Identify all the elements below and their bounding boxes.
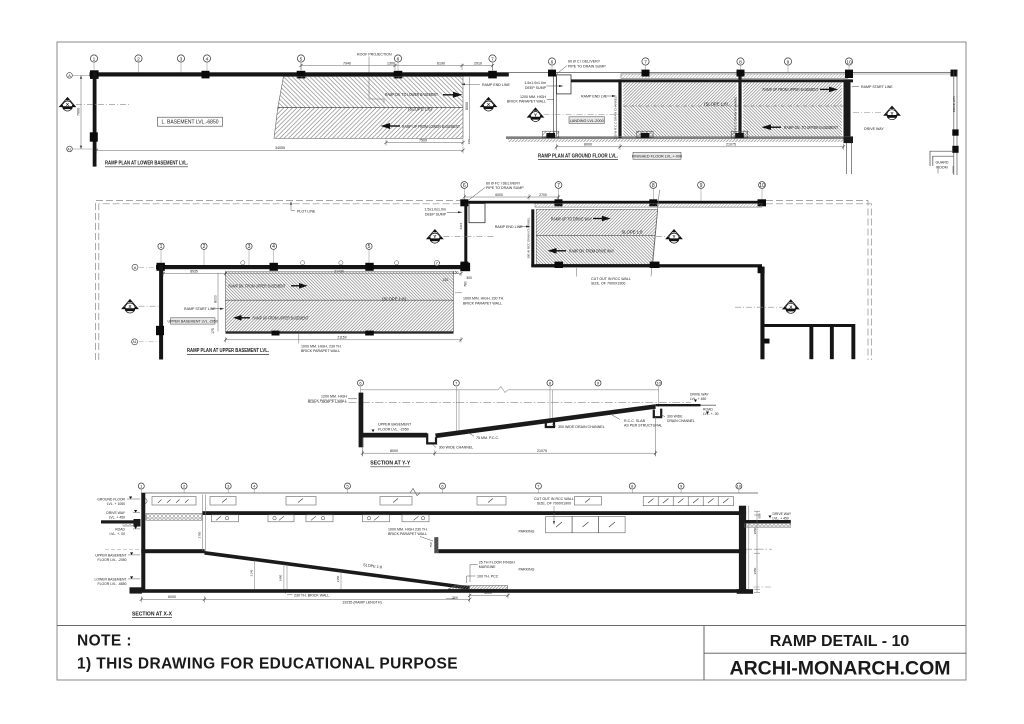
svg-text:5000: 5000 bbox=[484, 591, 492, 595]
svg-text:300 W RCC DRAIN CHANNEL: 300 W RCC DRAIN CHANNEL bbox=[527, 217, 531, 259]
svg-text:SIZE, OF 7000X1900: SIZE, OF 7000X1900 bbox=[537, 502, 571, 506]
svg-text:ROOM: ROOM bbox=[936, 166, 947, 170]
svg-text:2145: 2145 bbox=[250, 569, 254, 576]
svg-text:230 TH. BRICK WALL: 230 TH. BRICK WALL bbox=[294, 593, 329, 597]
svg-text:8000: 8000 bbox=[584, 143, 592, 147]
svg-text:LVL. + 450: LVL. + 450 bbox=[773, 517, 789, 521]
svg-text:300 WIDE CHANNEL: 300 WIDE CHANNEL bbox=[439, 446, 474, 450]
svg-text:RAMP UP FROM LOWER BASEMENT: RAMP UP FROM LOWER BASEMENT bbox=[402, 124, 460, 129]
svg-text:1.5x1.0x1.0m: 1.5x1.0x1.0m bbox=[424, 208, 446, 212]
svg-text:ARCHI-MONARCH.COM: ARCHI-MONARCH.COM bbox=[730, 657, 951, 679]
svg-text:DRIVE WAY: DRIVE WAY bbox=[864, 127, 884, 131]
svg-text:600: 600 bbox=[758, 513, 762, 518]
svg-text:RAMP PLAN AT UPPER BASEMENT LV: RAMP PLAN AT UPPER BASEMENT LVL. bbox=[187, 348, 269, 354]
svg-text:3050: 3050 bbox=[753, 527, 757, 534]
svg-text:300: 300 bbox=[466, 276, 472, 280]
svg-text:RAMP DETAIL - 10: RAMP DETAIL - 10 bbox=[770, 633, 910, 650]
svg-text:1200 MM. HIGH: 1200 MM. HIGH bbox=[520, 95, 546, 99]
svg-text:34055: 34055 bbox=[275, 146, 285, 150]
svg-text:GROUND FLOOR: GROUND FLOOR bbox=[97, 498, 125, 502]
svg-text:3400: 3400 bbox=[279, 574, 283, 581]
svg-text:PIPE TO DRAIN SUMP: PIPE TO DRAIN SUMP bbox=[568, 64, 606, 68]
svg-text:1) THIS DRAWING FOR EDUCATIONA: 1) THIS DRAWING FOR EDUCATIONAL PURPOSE bbox=[77, 656, 458, 673]
svg-text:DRIVE WAY: DRIVE WAY bbox=[952, 96, 956, 113]
svg-text:A: A bbox=[134, 265, 137, 270]
svg-text:PLOT LINE: PLOT LINE bbox=[297, 210, 316, 214]
svg-text:BRICK PARAPET WALL: BRICK PARAPET WALL bbox=[388, 532, 427, 536]
svg-text:10: 10 bbox=[656, 381, 661, 386]
svg-text:BRICK PARAPET WALL: BRICK PARAPET WALL bbox=[507, 100, 546, 104]
svg-text:FLOOR LVL. -2050: FLOOR LVL. -2050 bbox=[378, 427, 409, 431]
svg-text:8000: 8000 bbox=[465, 102, 469, 110]
svg-text:3: 3 bbox=[248, 244, 251, 250]
svg-text:21075: 21075 bbox=[537, 449, 547, 453]
svg-text:1: 1 bbox=[93, 56, 96, 62]
svg-text:10: 10 bbox=[846, 60, 852, 66]
svg-text:6000: 6000 bbox=[495, 193, 503, 197]
svg-text:2: 2 bbox=[203, 244, 206, 250]
svg-text:6190: 6190 bbox=[437, 61, 445, 65]
svg-text:RAMP START LINE: RAMP START LINE bbox=[861, 85, 893, 89]
svg-text:(SLOPE 1:8): (SLOPE 1:8) bbox=[382, 296, 406, 301]
svg-text:2700: 2700 bbox=[539, 193, 547, 197]
svg-text:10: 10 bbox=[759, 183, 765, 189]
svg-text:7: 7 bbox=[557, 183, 560, 189]
svg-text:3650: 3650 bbox=[753, 567, 757, 574]
svg-text:LVL. +- 00: LVL. +- 00 bbox=[110, 532, 126, 536]
svg-text:RAMP PLAN AT GROUND FLOOR LVL.: RAMP PLAN AT GROUND FLOOR LVL. bbox=[538, 153, 618, 159]
svg-text:6: 6 bbox=[397, 57, 400, 63]
svg-text:175: 175 bbox=[211, 328, 215, 334]
svg-text:300 W R.C.C DRAIN CHANNEL: 300 W R.C.C DRAIN CHANNEL bbox=[614, 96, 618, 139]
svg-text:6215: 6215 bbox=[459, 222, 463, 229]
svg-text:1000 MM. HIGH 230 TH.: 1000 MM. HIGH 230 TH. bbox=[388, 527, 428, 531]
svg-text:DRAIN CHANNEL: DRAIN CHANNEL bbox=[667, 419, 695, 423]
svg-text:8: 8 bbox=[739, 60, 742, 66]
svg-text:SIZE, OF 7000X1900: SIZE, OF 7000X1900 bbox=[591, 282, 625, 286]
svg-text:GUARD: GUARD bbox=[936, 161, 949, 165]
svg-text:UPPER BASEMENT: UPPER BASEMENT bbox=[378, 423, 412, 427]
svg-text:7: 7 bbox=[491, 57, 494, 63]
svg-text:BRICK PARAPET WALL: BRICK PARAPET WALL bbox=[308, 399, 347, 403]
svg-text:100 TH. PCC: 100 TH. PCC bbox=[477, 574, 499, 578]
svg-text:210: 210 bbox=[443, 278, 449, 282]
svg-text:9: 9 bbox=[700, 183, 703, 189]
svg-text:750: 750 bbox=[429, 542, 433, 547]
svg-text:1200 MM. HIGH: 1200 MM. HIGH bbox=[321, 394, 347, 398]
svg-text:2: 2 bbox=[137, 57, 140, 63]
svg-text:CUT OUT IN RCC WALL: CUT OUT IN RCC WALL bbox=[591, 277, 631, 281]
svg-text:ROAD: ROAD bbox=[703, 408, 713, 412]
svg-text:RAMP UP FROM UPPER BASEMENT: RAMP UP FROM UPPER BASEMENT bbox=[763, 87, 819, 92]
svg-text:ROAD: ROAD bbox=[115, 527, 125, 531]
svg-text:NOTE :: NOTE : bbox=[77, 633, 132, 650]
svg-text:UPPER BASEMENT LVL.-2050: UPPER BASEMENT LVL.-2050 bbox=[167, 320, 217, 324]
svg-text:ROOF PROJECTION: ROOF PROJECTION bbox=[357, 53, 392, 57]
svg-text:(SLOPE 1:8): (SLOPE 1:8) bbox=[408, 106, 432, 111]
svg-text:8: 8 bbox=[652, 183, 655, 189]
svg-text:3: 3 bbox=[180, 57, 183, 63]
svg-text:SECTION AT Y-Y: SECTION AT Y-Y bbox=[370, 461, 410, 467]
svg-text:150: 150 bbox=[453, 271, 459, 275]
svg-text:2910: 2910 bbox=[474, 61, 482, 65]
svg-text:190: 190 bbox=[467, 139, 471, 144]
svg-text:LANDING LVL-2000: LANDING LVL-2000 bbox=[570, 119, 604, 123]
svg-text:A: A bbox=[68, 74, 71, 78]
svg-text:RAMP DN. TO UPPER BASEMENT: RAMP DN. TO UPPER BASEMENT bbox=[784, 125, 838, 130]
svg-text:1000 MM. HIGH, 230 TH.: 1000 MM. HIGH, 230 TH. bbox=[301, 344, 342, 348]
svg-text:BRICK PARAPET WALL: BRICK PARAPET WALL bbox=[463, 301, 502, 305]
svg-text:A1: A1 bbox=[67, 147, 71, 151]
svg-text:9: 9 bbox=[787, 60, 790, 66]
svg-text:A1: A1 bbox=[133, 340, 137, 344]
svg-text:FINISHED FLOOR LVL.+-000: FINISHED FLOOR LVL.+-000 bbox=[632, 154, 682, 158]
svg-text:DRIVE WAY: DRIVE WAY bbox=[773, 512, 792, 516]
svg-text:RAMP UP TO DRIVE WAY: RAMP UP TO DRIVE WAY bbox=[551, 216, 592, 221]
svg-text:DEEP SUMP: DEEP SUMP bbox=[425, 212, 447, 216]
svg-text:LVL. +- 00: LVL. +- 00 bbox=[703, 412, 719, 416]
svg-text:RAMP UP FROM UPPER BASEMENT: RAMP UP FROM UPPER BASEMENT bbox=[253, 315, 309, 320]
svg-text:PARKING: PARKING bbox=[519, 529, 535, 533]
svg-text:PIPE TO DRAIN SUMP: PIPE TO DRAIN SUMP bbox=[486, 186, 524, 190]
svg-text:300 WIDE DRAIN CHANNEL: 300 WIDE DRAIN CHANNEL bbox=[558, 425, 605, 429]
svg-text:FLOOR LVL. -2050: FLOOR LVL. -2050 bbox=[98, 558, 127, 562]
svg-text:4: 4 bbox=[272, 244, 275, 250]
svg-text:RAMP DN. TO LOWER BASEMENT: RAMP DN. TO LOWER BASEMENT bbox=[385, 92, 438, 97]
svg-text:8000: 8000 bbox=[390, 449, 398, 453]
svg-text:8935: 8935 bbox=[190, 269, 198, 273]
svg-text:2750: 2750 bbox=[198, 531, 202, 538]
svg-text:PARKING: PARKING bbox=[519, 567, 535, 571]
svg-text:4: 4 bbox=[206, 57, 209, 63]
svg-text:1: 1 bbox=[160, 244, 163, 250]
svg-text:RAMP PLAN AT LOWER BASEMENT LV: RAMP PLAN AT LOWER BASEMENT LVL. bbox=[105, 161, 188, 167]
svg-text:300 WIDE: 300 WIDE bbox=[667, 415, 683, 419]
svg-text:21075: 21075 bbox=[726, 143, 736, 147]
svg-text:LVL. + 450: LVL. + 450 bbox=[690, 397, 706, 401]
svg-text:60 Ø FC I DELIVERY: 60 Ø FC I DELIVERY bbox=[486, 181, 521, 185]
svg-text:LVL. + 1050: LVL. + 1050 bbox=[107, 502, 125, 506]
svg-text:25 TH FLOOR FINISH: 25 TH FLOOR FINISH bbox=[479, 560, 515, 564]
svg-text:7000: 7000 bbox=[76, 108, 80, 116]
svg-text:19235 (RAMP LENGTH): 19235 (RAMP LENGTH) bbox=[342, 601, 381, 605]
svg-text:UPPER BASEMENT: UPPER BASEMENT bbox=[95, 553, 126, 557]
svg-text:780: 780 bbox=[464, 281, 468, 287]
svg-text:6: 6 bbox=[463, 183, 466, 189]
svg-text:DEEP SUMP: DEEP SUMP bbox=[525, 86, 547, 90]
svg-text:RAMP DN. FROM DRIVE WAY: RAMP DN. FROM DRIVE WAY bbox=[569, 248, 614, 253]
svg-text:RAMP END LINE: RAMP END LINE bbox=[482, 83, 510, 87]
svg-text:MARGINE: MARGINE bbox=[479, 565, 496, 569]
svg-text:LOWER BASEMENT: LOWER BASEMENT bbox=[94, 577, 126, 581]
svg-text:1350: 1350 bbox=[336, 575, 340, 582]
svg-text:SLOPE 1:8: SLOPE 1:8 bbox=[363, 563, 382, 569]
svg-text:BRICK PARAPET WALL: BRICK PARAPET WALL bbox=[301, 349, 340, 353]
svg-text:60 Ø C.I DELIVERY: 60 Ø C.I DELIVERY bbox=[568, 60, 601, 64]
svg-text:SLOPE 1:8: SLOPE 1:8 bbox=[622, 230, 644, 235]
svg-text:6: 6 bbox=[551, 59, 554, 65]
svg-text:7: 7 bbox=[644, 60, 647, 66]
svg-text:7500: 7500 bbox=[419, 138, 427, 142]
svg-text:7940: 7940 bbox=[343, 61, 351, 65]
svg-text:5: 5 bbox=[368, 244, 371, 250]
svg-text:300: 300 bbox=[452, 596, 458, 600]
svg-text:RAMP END LINE: RAMP END LINE bbox=[495, 225, 523, 229]
svg-text:21150: 21150 bbox=[337, 336, 346, 340]
svg-text:SECTION AT X-X: SECTION AT X-X bbox=[132, 611, 172, 617]
svg-text:RAMP START LINE: RAMP START LINE bbox=[184, 307, 216, 311]
svg-text:8000: 8000 bbox=[213, 295, 217, 303]
svg-text:75 MM. P.C.C.: 75 MM. P.C.C. bbox=[476, 436, 499, 440]
svg-text:(SLOPE 1:8): (SLOPE 1:8) bbox=[704, 101, 728, 106]
svg-text:5: 5 bbox=[300, 57, 303, 63]
svg-text:1300: 1300 bbox=[387, 61, 395, 65]
svg-text:L. BASEMENT LVL.-6850: L. BASEMENT LVL.-6850 bbox=[161, 120, 218, 126]
svg-text:R.C.C. SLAB: R.C.C. SLAB bbox=[624, 419, 646, 423]
svg-text:1000 MIN. HIGH, 230 TH.: 1000 MIN. HIGH, 230 TH. bbox=[463, 297, 504, 301]
svg-text:CUT OUT IN RCC WALL: CUT OUT IN RCC WALL bbox=[534, 497, 574, 501]
svg-text:RAMP END LVL: RAMP END LVL bbox=[581, 95, 607, 99]
svg-text:DRIVE WAY: DRIVE WAY bbox=[106, 511, 125, 515]
svg-text:LVL. + 450: LVL. + 450 bbox=[109, 515, 125, 519]
svg-text:1.5x1.0x1.0m: 1.5x1.0x1.0m bbox=[524, 81, 546, 85]
svg-text:6000: 6000 bbox=[168, 595, 176, 599]
svg-text:DRIVE WAY: DRIVE WAY bbox=[690, 392, 709, 396]
svg-text:RAMP DN. FROM UPPER BASEMENT: RAMP DN. FROM UPPER BASEMENT bbox=[229, 283, 286, 288]
svg-text:10: 10 bbox=[737, 484, 742, 489]
svg-text:FLOOR LVL. -6850: FLOOR LVL. -6850 bbox=[98, 582, 127, 586]
svg-text:AS PER STRUCTURAL: AS PER STRUCTURAL bbox=[624, 424, 662, 428]
